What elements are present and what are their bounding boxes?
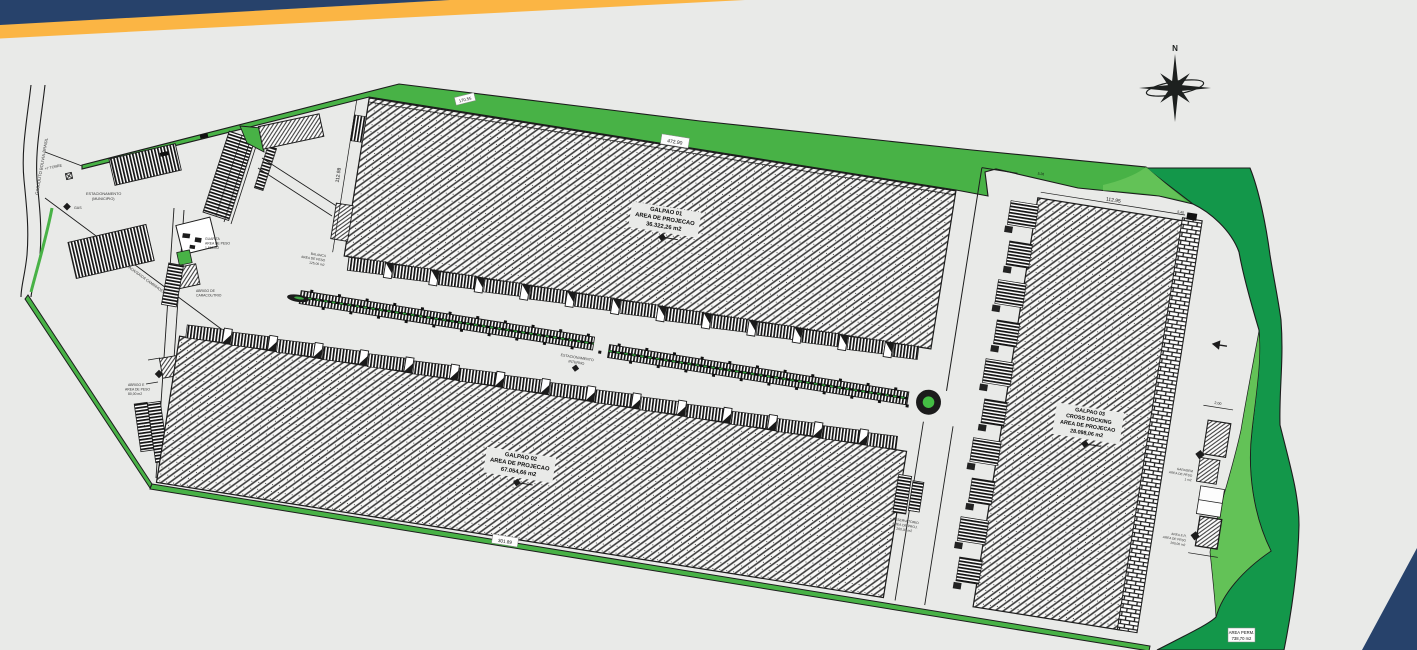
- svg-text:GAS: GAS: [74, 206, 82, 210]
- svg-text:738,70 m2: 738,70 m2: [1232, 636, 1252, 641]
- svg-text:GUARITA: GUARITA: [205, 237, 221, 241]
- svg-text:AREA PERM.: AREA PERM.: [1229, 630, 1255, 635]
- svg-text:ESTACIONAMENTO: ESTACIONAMENTO: [86, 192, 121, 196]
- svg-text:AREA DE PESO: AREA DE PESO: [125, 388, 150, 392]
- svg-text:1.568 m2: 1.568 m2: [205, 246, 219, 250]
- svg-text:CARACOL/TRIO: CARACOL/TRIO: [196, 294, 222, 298]
- svg-text:ABRIGO DE: ABRIGO DE: [196, 289, 216, 293]
- svg-text:(MUNICIPIO): (MUNICIPIO): [92, 197, 115, 201]
- svg-text:AREA DE PESO: AREA DE PESO: [205, 242, 230, 246]
- svg-text:80,00 m2: 80,00 m2: [128, 392, 142, 396]
- svg-text:ABRIGO E: ABRIGO E: [128, 383, 145, 387]
- svg-text:N: N: [1172, 44, 1178, 53]
